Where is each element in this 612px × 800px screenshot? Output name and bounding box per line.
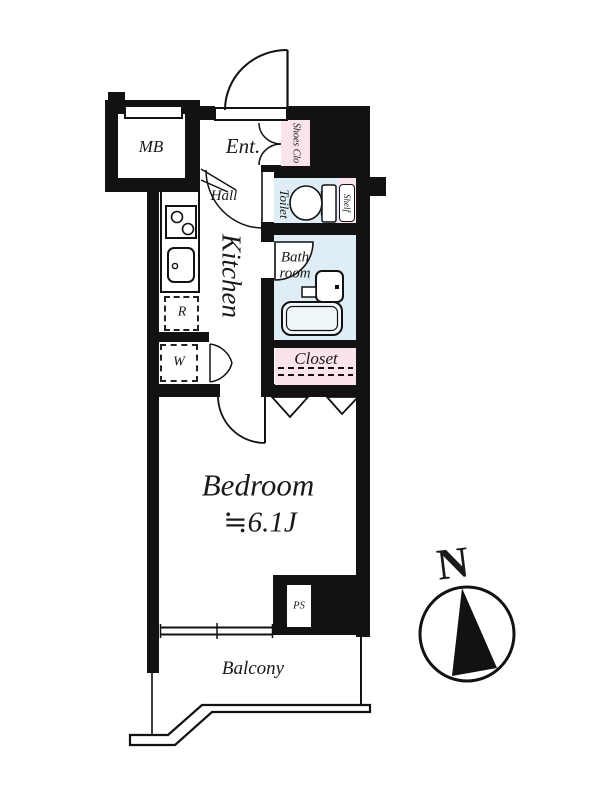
toilet-bowl-icon	[290, 186, 322, 220]
toilet-label: Toilet	[276, 189, 292, 218]
kitchen-faucet-dot	[172, 263, 177, 268]
shoes-closet-door-arc-bottom	[259, 144, 281, 165]
bedroom-size-value: 6.1J	[248, 506, 297, 538]
compass-north-label: N	[434, 539, 471, 589]
toilet-tank-icon	[322, 185, 336, 222]
shelf-label: Shelf	[342, 194, 352, 212]
entrance-label: Ent.	[226, 135, 260, 157]
washer-door-fold-top	[210, 344, 232, 363]
balcony-bottom-band	[130, 705, 370, 745]
shoes-closet-label: Shoes Clo	[291, 123, 302, 163]
shoes-closet-door-arc-top	[259, 123, 281, 144]
bedroom-door-arc	[218, 396, 265, 443]
refrigerator-label: R	[178, 306, 187, 321]
closet-label: Closet	[294, 350, 337, 368]
washer-label: W	[173, 356, 185, 371]
hall-label: Hall	[211, 189, 238, 205]
bath-sink-faucet-dot	[335, 285, 339, 289]
closet-fold-door-2	[327, 397, 358, 414]
mb-label: MB	[139, 138, 164, 156]
entrance-door-arc	[225, 50, 288, 110]
closet-fold-door-1	[272, 397, 308, 417]
approx-equals-symbol: ≒	[223, 504, 247, 538]
bathroom-label-line2: room	[279, 266, 310, 282]
kitchen-label: Kitchen	[216, 234, 247, 318]
bedroom-size-label: ≒6.1J	[223, 506, 296, 537]
stove-burner-1	[172, 212, 183, 223]
bathroom-label: Bath room	[279, 250, 310, 282]
floorplan-canvas: MB Ent. Shoes Clo Hall Toilet Shelf Kitc…	[0, 0, 612, 800]
bedroom-label: Bedroom	[202, 470, 315, 503]
lineart-overlay	[0, 0, 612, 800]
washer-door-fold-bottom	[210, 363, 232, 382]
balcony-label: Balcony	[222, 659, 284, 679]
pipe-space-label: PS	[293, 600, 305, 611]
bathroom-label-line1: Bath	[279, 250, 310, 266]
bath-counter-stub	[302, 287, 316, 297]
stove-burner-2	[183, 224, 194, 235]
